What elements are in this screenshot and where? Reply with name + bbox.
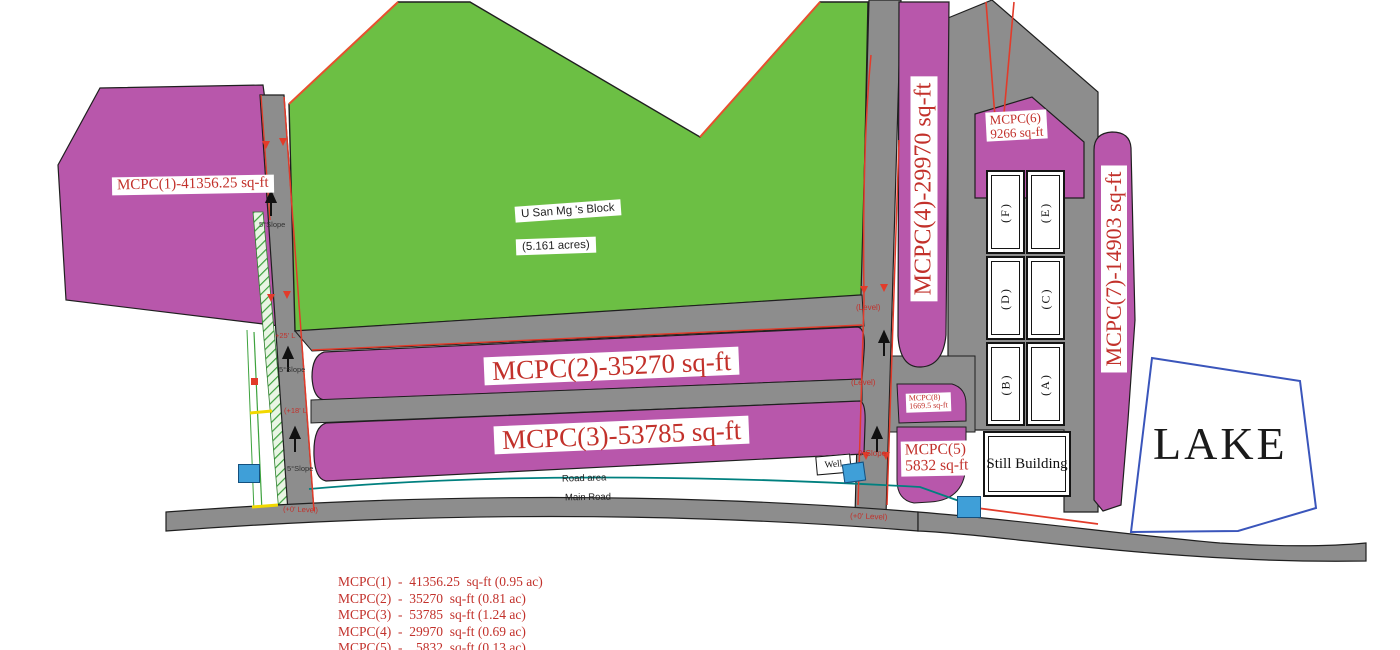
unit-box-a: (A) (1026, 342, 1065, 426)
plot-mcpc7-label: MCPC(7)-14903 sq-ft (1101, 166, 1127, 373)
legend-line-5: MCPC(5) - 5832 sq-ft (0.13 ac) (338, 640, 543, 650)
plot-mcpc8-line2: 1669.5 sq-ft (909, 402, 948, 412)
plot-mcpc4-label: MCPC(4)-29970 sq-ft (911, 77, 938, 302)
legend: MCPC(1) - 41356.25 sq-ft (0.95 ac) MCPC(… (338, 574, 543, 650)
blue-marker-well (842, 462, 866, 484)
block-area-label: (5.161 acres) (516, 237, 596, 256)
unit-box-d: (D) (986, 256, 1025, 340)
unit-label-b: (B) (998, 373, 1013, 395)
legend-line-2: MCPC(2) - 35270 sq-ft (0.81 ac) (338, 591, 543, 608)
yellow-tick-1 (250, 411, 272, 413)
plot-mcpc6-label: MCPC(6) 9266 sq-ft (985, 109, 1048, 141)
legend-line-1: MCPC(1) - 41356.25 sq-ft (0.95 ac) (338, 574, 543, 591)
blue-marker-still (957, 496, 981, 518)
level-label-18: (+18' L (284, 407, 307, 415)
plot-mcpc5-label: MCPC(5) 5832 sq-ft (901, 440, 973, 476)
unit-box-f: (F) (986, 170, 1025, 254)
lake-label: LAKE (1153, 420, 1288, 468)
site-plan-drawing (0, 0, 1400, 650)
green-boundary-line-1 (254, 332, 262, 512)
legend-line-4: MCPC(4) - 29970 sq-ft (0.69 ac) (338, 624, 543, 641)
unit-label-e: (E) (1038, 201, 1053, 222)
level-label-25: +25' L (275, 332, 295, 340)
unit-label-d: (D) (998, 287, 1013, 310)
plot-mcpc6-line2: 9266 sq-ft (990, 124, 1044, 140)
blue-marker-left (238, 464, 260, 483)
plot-mcpc8-label: MCPC(8) 1669.5 sq-ft (906, 392, 951, 412)
unit-box-b: (B) (986, 342, 1025, 426)
level-label-mid-1: (Level) (856, 304, 880, 312)
road-area-label: Road area (562, 473, 607, 484)
slope-label-3: 5°Slope (287, 465, 313, 473)
plot-mcpc1-label: MCPC(1)-41356.25 sq-ft (112, 175, 274, 196)
site-plan: MCPC(1)-41356.25 sq-ft U San Mg 's Block… (0, 0, 1400, 650)
still-building-label: Still Building (986, 456, 1067, 473)
unit-label-a: (A) (1038, 373, 1053, 396)
green-boundary-line-2 (247, 330, 254, 512)
level-label-0-left: (+0' Level) (283, 505, 318, 514)
still-building: Still Building (983, 431, 1071, 497)
main-road-label: Main Road (565, 493, 611, 504)
level-label-mid-2: (Level) (851, 379, 875, 387)
well-label: Well (824, 459, 843, 471)
green-block-shape (289, 2, 868, 331)
legend-line-3: MCPC(3) - 53785 sq-ft (1.24 ac) (338, 607, 543, 624)
unit-label-c: (C) (1038, 287, 1053, 309)
slope-label-1: 5°Slope (259, 221, 285, 229)
slope-label-2: 5°Slope (279, 366, 305, 374)
slope-label-0: 0°Slope (858, 450, 886, 458)
yellow-tick-2 (252, 505, 278, 507)
level-label-0-mid: (+0' Level) (850, 512, 888, 522)
unit-box-e: (E) (1026, 170, 1065, 254)
unit-box-c: (C) (1026, 256, 1065, 340)
plot-mcpc5-line2: 5832 sq-ft (905, 458, 969, 475)
unit-label-f: (F) (998, 202, 1013, 223)
